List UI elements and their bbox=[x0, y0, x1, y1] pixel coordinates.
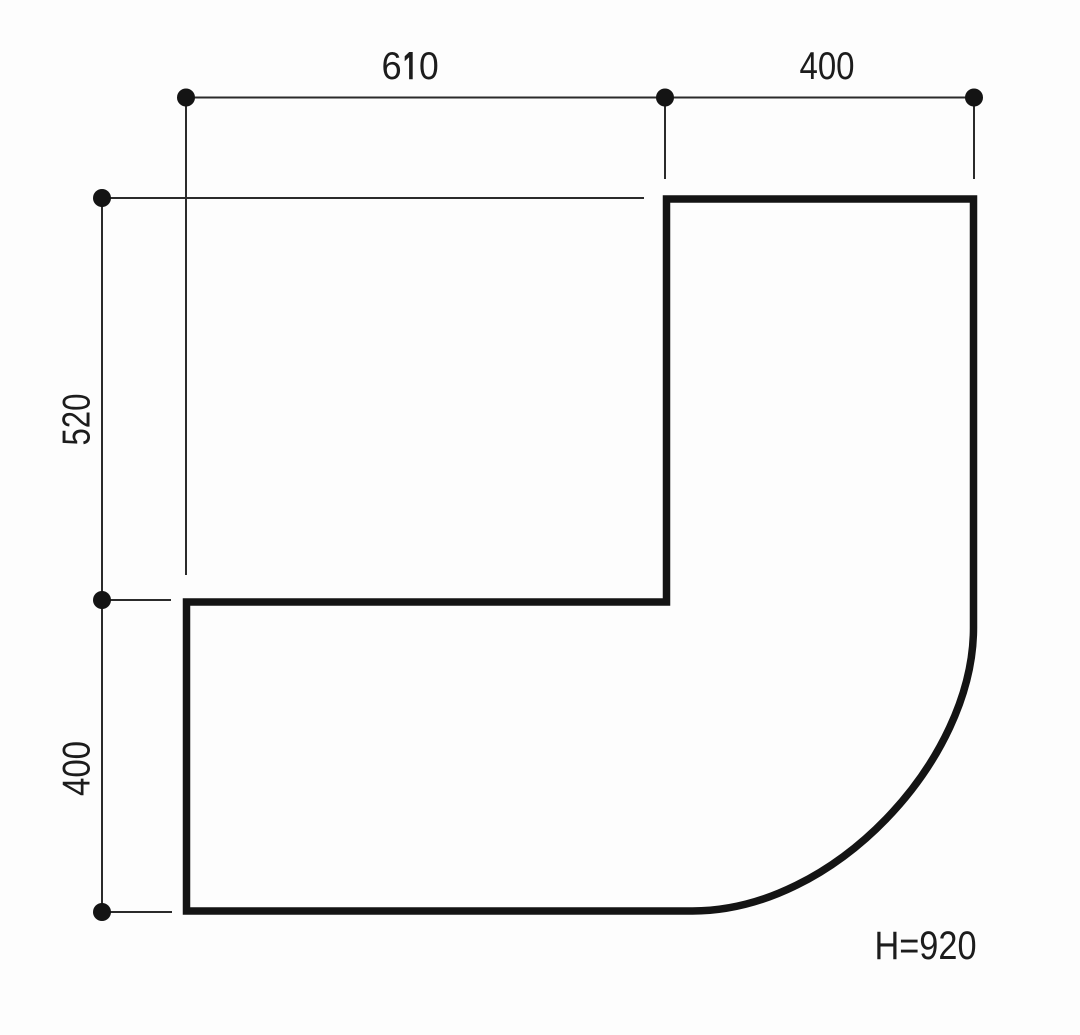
svg-text:520: 520 bbox=[55, 394, 98, 446]
svg-text:6: 6 bbox=[382, 44, 402, 87]
svg-text:400: 400 bbox=[799, 43, 854, 87]
svg-text:H=920: H=920 bbox=[875, 923, 977, 968]
svg-text:0: 0 bbox=[419, 43, 439, 87]
svg-text:400: 400 bbox=[54, 741, 98, 796]
